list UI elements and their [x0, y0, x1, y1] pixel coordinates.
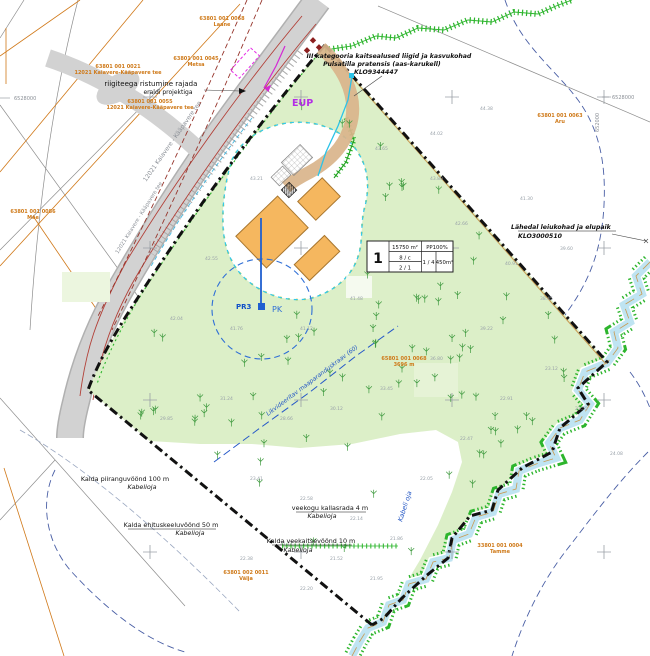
cadastral-label: 33801 001 0004Tamme: [477, 543, 523, 555]
grid-cross: [143, 545, 157, 559]
cadastral-label: 63801 002 0011Välja: [223, 570, 269, 582]
grid-cross: [597, 545, 611, 559]
grid-cross: [445, 90, 459, 104]
elevation-label: 23.12: [545, 366, 558, 372]
elevation-label: 30.12: [330, 406, 343, 412]
elevation-label: 36.80: [430, 356, 443, 362]
coord-left-label: 6528000: [14, 96, 36, 102]
coord-right-v-label: 652000: [595, 113, 601, 132]
elevation-label: 22.38: [240, 556, 253, 562]
pr3-label: PR3: [236, 303, 252, 311]
elevation-label: 43.80: [430, 176, 443, 182]
coord-right-h-label: 6528000: [612, 95, 634, 101]
elevation-label: 43.65: [375, 146, 388, 152]
elevation-label: 22.58: [300, 496, 313, 502]
elevation-label: 42.55: [205, 256, 218, 262]
eup-label: EUP: [292, 98, 313, 109]
elevation-label: 22.14: [350, 516, 363, 522]
cadastral-label: 63801 001 0045Metsa: [173, 56, 219, 68]
plot-r4: 450m²: [436, 259, 453, 266]
plot-area: 15750 m²: [392, 244, 418, 251]
elevation-label: 28.66: [280, 416, 293, 422]
elevation-label: 21.52: [330, 556, 343, 562]
elevation-label: 41.76: [230, 326, 243, 332]
cadastral-label: 63801 001 0063Aru: [537, 113, 583, 125]
cadastral-label: 63801 001 0068Laane: [199, 16, 245, 28]
plot-number: 1: [373, 251, 383, 267]
elevation-label: 38.45: [540, 296, 553, 302]
cadastral-label: 63801 001 0086Mäe: [10, 209, 56, 221]
pale-patch-3: [346, 276, 372, 298]
elevation-label: 21.95: [370, 576, 383, 582]
elevation-label: 31.24: [220, 396, 233, 402]
elevation-label: 29.85: [160, 416, 173, 422]
elevation-label: 33.45: [380, 386, 393, 392]
plot-r3: 1 / 4: [423, 260, 436, 266]
habitat-note: Lähedal leiukohad ja elupaik KLO3000510: [511, 224, 613, 240]
elevation-label: 22.47: [460, 436, 473, 442]
elevation-label: 21.86: [390, 536, 403, 542]
elevation-label: 39.60: [560, 246, 573, 252]
pk-label: PK: [272, 305, 283, 314]
pale-patch-1: [62, 272, 110, 302]
elevation-label: 39.22: [480, 326, 493, 332]
borehole-symbol: [258, 303, 265, 310]
elevation-label: 40.91: [505, 261, 518, 267]
elevation-label: 41.30: [520, 196, 533, 202]
elevation-label: 44.02: [430, 131, 443, 137]
elevation-label: 23.55: [575, 406, 588, 412]
shore-limit-label: Kalda piiranguvöönd 100 m Kabelioja: [81, 475, 171, 491]
elevation-label: 41.12: [300, 326, 313, 332]
elevation-label: 22.20: [300, 586, 313, 592]
site-plan-map: 43.6544.0244.3843.2142.5542.0441.7641.12…: [0, 0, 650, 656]
elevation-label: 22.05: [420, 476, 433, 482]
plot-r1: 8 / c: [399, 256, 411, 262]
plot-table: 1 15750 m² PP100% 8 / c 2 / 1 1 / 4 450m…: [367, 241, 453, 272]
elevation-label: 23.41: [250, 476, 263, 482]
elevation-label: 22.91: [500, 396, 513, 402]
plot-r2: 2 / 1: [399, 266, 411, 272]
elevation-label: 42.04: [170, 316, 183, 322]
elevation-label: 41.48: [350, 296, 363, 302]
drainage-ditch-north: [325, 0, 572, 50]
elevation-label: 42.66: [455, 221, 468, 227]
elevation-label: 43.21: [250, 176, 263, 182]
pale-patch-2: [414, 363, 458, 397]
elevation-label: 44.38: [480, 106, 493, 112]
elevation-label: 24.08: [610, 451, 623, 457]
plot-pp: PP100%: [426, 245, 448, 251]
grid-cross: [597, 241, 611, 255]
site-plan-page: 43.6544.0244.3843.2142.5542.0441.7641.12…: [0, 0, 650, 656]
